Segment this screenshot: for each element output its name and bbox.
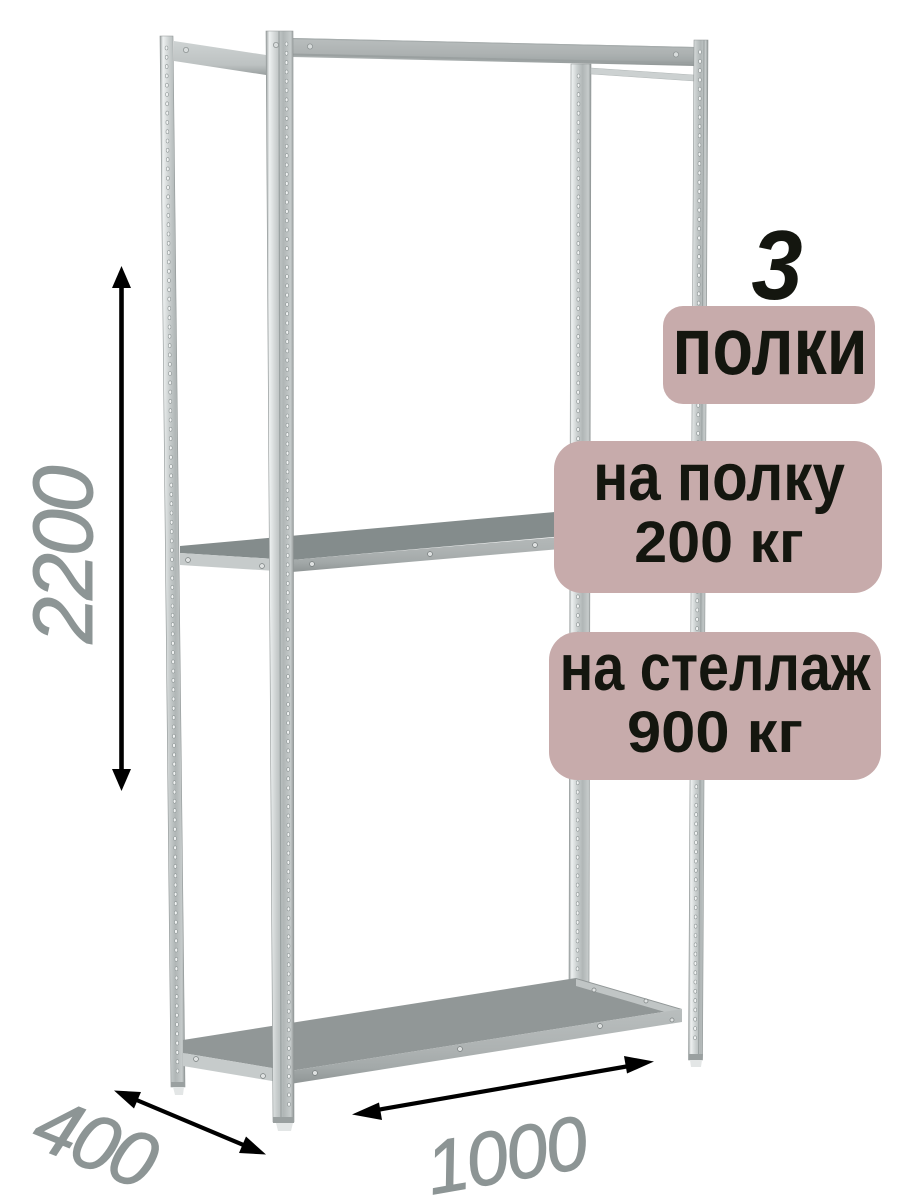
svg-text:на стеллаж: на стеллаж <box>560 631 871 704</box>
svg-text:полки: полки <box>672 299 867 391</box>
svg-text:900 кг: 900 кг <box>627 700 803 765</box>
svg-text:на полку: на полку <box>593 440 845 515</box>
svg-text:200 кг: 200 кг <box>634 511 803 575</box>
svg-text:2200: 2200 <box>16 465 110 644</box>
